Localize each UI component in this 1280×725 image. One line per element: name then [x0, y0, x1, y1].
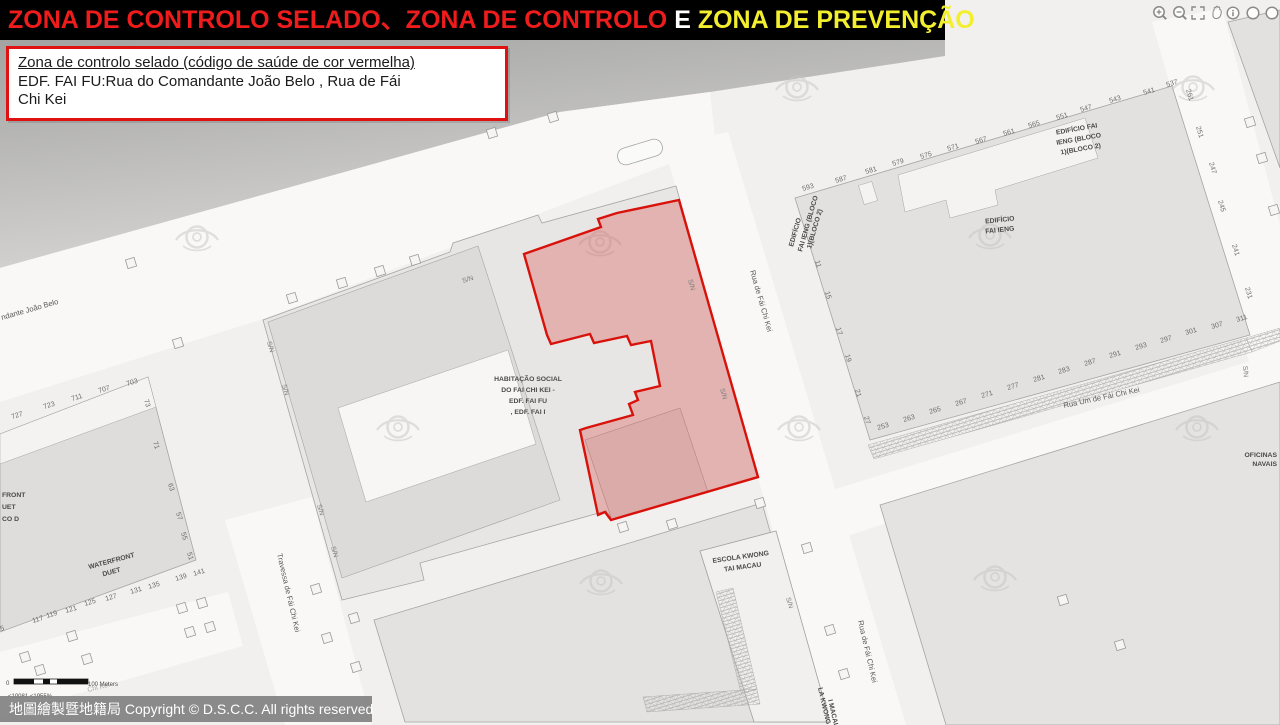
scale-label: 100 Meters [88, 682, 118, 688]
sn-label: S/N [1241, 366, 1249, 378]
map-viewer: ndante João BeloRua de Fái Chi KeiRua Um… [0, 0, 1280, 725]
building-label: HABITAÇÃO SOCIAL [494, 374, 562, 383]
identify-icon[interactable] [1227, 7, 1239, 19]
building-label: EDF. FAI FU [509, 398, 547, 405]
prev-extent-icon[interactable] [1247, 7, 1259, 19]
copyright-bar: 地圖繪製暨地籍局 Copyright © D.S.C.C. All rights… [0, 696, 372, 722]
next-extent-icon[interactable] [1266, 7, 1278, 19]
info-box-title: Zona de controlo selado (código de saúde… [18, 54, 496, 73]
info-box-line3: Chi Kei [18, 91, 496, 110]
building-label: FRONT [2, 492, 26, 499]
info-box: Zona de controlo selado (código de saúde… [6, 46, 508, 121]
header-yellow-text: ZONA DE PREVENÇÃO [698, 6, 975, 34]
building-label: UET [2, 504, 16, 511]
building-label: NAVAIS [1252, 461, 1277, 468]
info-box-line2: EDF. FAI FU:Rua do Comandante João Belo … [18, 73, 496, 92]
pan-hand-icon[interactable] [1213, 6, 1221, 18]
header-banner: ZONA DE CONTROLO SELADO、ZONA DE CONTROLO… [0, 0, 945, 40]
building-label: DO FAI CHI KEI - [501, 387, 555, 394]
building-label: , EDF. FAI I [511, 409, 546, 416]
header-white-text: E [674, 6, 698, 34]
building-label: OFICINAS [1245, 452, 1278, 459]
header-red-text: ZONA DE CONTROLO SELADO、ZONA DE CONTROLO [8, 6, 674, 34]
building-label: CO D [2, 516, 19, 523]
scale-bar [14, 679, 88, 684]
